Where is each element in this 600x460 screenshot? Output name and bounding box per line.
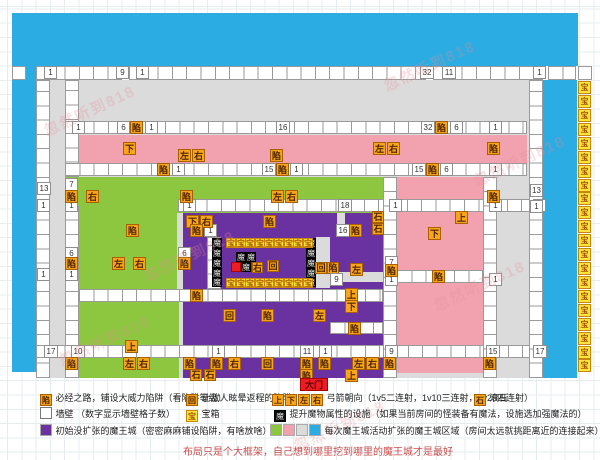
treasure-cell: 宝 [578, 206, 591, 219]
treasure-cell: 宝 [293, 238, 303, 248]
trap-cell: 右 [252, 262, 263, 273]
wall-count-cell: 9 [330, 273, 343, 286]
trap-cell: 回 [267, 260, 279, 272]
trap-cell: 陷 [349, 224, 362, 237]
zone-expansion [12, 13, 578, 66]
legend-item: 宝 宝箱 [186, 407, 220, 422]
boss-core-cell [231, 262, 241, 272]
legend-下-icon: 下 [285, 394, 297, 406]
legend-陷-icon: 陷 [40, 394, 52, 406]
wall-count-cell: 17 [533, 345, 547, 358]
demon-facility-cell: 魔 [212, 238, 222, 248]
trap-cell: 陷 [348, 322, 361, 335]
wall-count-cell: 13 [37, 182, 51, 195]
gate-cell: 大门 [300, 378, 328, 391]
treasure-cell: 宝 [578, 248, 591, 261]
wall-count-cell: 6 [117, 121, 130, 134]
trap-cell: 石 [204, 369, 216, 381]
legend-item-label: 让敌人眩晕返程的陷阱 [199, 393, 292, 403]
trap-cell: 回 [261, 357, 274, 370]
legend-item: 每次魔王城活动扩张的魔王城区域（房间太远就挑距离近的连接起来）… [270, 424, 600, 437]
treasure-cell: 宝 [578, 179, 591, 192]
treasure-cell: 宝 [274, 278, 284, 288]
trap-cell: 陷 [426, 163, 439, 176]
trap-cell: 左 [112, 257, 125, 270]
wall-count-cell: 32 [420, 66, 434, 79]
trap-cell: 下 [428, 227, 441, 240]
trap-cell: 陷 [65, 257, 78, 270]
legend-回-icon: 回 [186, 394, 198, 406]
treasure-cell: 宝 [578, 234, 591, 247]
wall-count-cell: 16 [276, 121, 290, 134]
wall-row [129, 66, 426, 80]
wall-count-cell: 1 [489, 163, 502, 176]
wall-count-cell: 6 [450, 121, 463, 134]
demon-facility-cell: 魔 [306, 248, 316, 258]
legend-item-label: 弓箭朝向（1v5二连射，1v10三连射，1v20四连射） [324, 393, 533, 403]
legend-pink-icon [283, 424, 295, 436]
wall-count-cell: 1 [290, 163, 303, 176]
legend-note: 布局只是个大框架，自己想到哪里挖到哪里的魔王城才是最好 [183, 443, 453, 458]
trap-cell: 石 [190, 369, 202, 381]
legend-右-icon: 右 [311, 394, 323, 406]
treasure-cell: 宝 [578, 318, 591, 331]
trap-cell: 右 [86, 190, 99, 203]
legend-item: 魔 提升魔物属性的设施（如果当前房间的怪装备有魔法，设施选加强魔法的） [274, 407, 587, 422]
trap-cell: 陷 [261, 309, 274, 322]
legend-cyan-icon [309, 424, 321, 436]
treasure-cell: 宝 [303, 278, 313, 288]
treasure-cell: 宝 [578, 95, 591, 108]
trap-cell: 石 [372, 211, 384, 223]
wall-count-cell: 15 [262, 163, 276, 176]
legend-item-label: 墙壁 （数字显示墙壁格子数） [53, 409, 175, 419]
legend-item-label: 每次魔王城活动扩张的魔王城区域（房间太远就挑距离近的连接起来）… [322, 426, 600, 436]
treasure-cell: 宝 [578, 346, 591, 359]
wall-count-cell: 1 [37, 199, 50, 212]
legend-item: 回 让敌人眩晕返程的陷阱 [186, 391, 292, 406]
demon-facility-cell: 魔 [246, 252, 256, 262]
treasure-cell: 宝 [293, 278, 303, 288]
trap-cell: 陷 [432, 270, 445, 283]
trap-cell: 陷 [190, 289, 203, 302]
wall-count-cell: 1 [530, 200, 543, 213]
trap-cell: 陷 [65, 190, 78, 203]
wall-count-cell: 11 [442, 66, 456, 79]
demon-facility-cell: 魔 [212, 258, 222, 268]
wall-count-cell: 1 [389, 199, 402, 212]
treasure-cell: 宝 [578, 220, 591, 233]
trap-cell: 回 [223, 309, 236, 322]
trap-cell: 陷 [65, 357, 78, 370]
trap-cell: 陷 [126, 224, 139, 237]
demon-facility-cell: 魔 [241, 262, 251, 272]
trap-cell: 左 [313, 309, 326, 322]
legend-item: 陷 必经之路，铺设大威力陷阱（看陷阱等级） [40, 391, 227, 406]
trap-cell: 右 [285, 190, 298, 203]
wall-count-cell: 1 [489, 273, 502, 286]
legend-上-icon: 上 [272, 394, 284, 406]
legend-左-icon: 左 [298, 394, 310, 406]
treasure-cell: 宝 [578, 304, 591, 317]
treasure-cell: 宝 [274, 238, 284, 248]
legend-item-label: 必经之路，铺设大威力陷阱（看陷阱等级） [53, 393, 227, 403]
wall-count-cell: 1 [72, 121, 85, 134]
trap-cell: 左 [373, 142, 386, 155]
wall-count-cell: 16 [336, 224, 350, 237]
treasure-cell: 宝 [578, 359, 591, 372]
wall-count-cell: 1 [37, 268, 50, 281]
trap-cell: 陷 [178, 257, 191, 270]
legend-gray-icon [296, 424, 308, 436]
treasure-cell: 宝 [578, 192, 591, 205]
treasure-cell: 宝 [578, 165, 591, 178]
wall-count-cell: 32 [421, 121, 435, 134]
legend-item-label: 宝箱 [199, 409, 220, 419]
trap-cell: 陷 [130, 121, 143, 134]
treasure-cell: 宝 [578, 123, 591, 136]
wall-column [529, 80, 543, 378]
trap-cell: 陷 [180, 190, 193, 203]
trap-cell: 陷 [487, 142, 500, 155]
treasure-cell: 宝 [578, 262, 591, 275]
trap-cell: 右 [133, 257, 146, 270]
wall-count-cell: 9 [116, 66, 129, 79]
treasure-cell: 宝 [578, 290, 591, 303]
wall-count-cell: 1 [136, 66, 149, 79]
wall-cell [578, 66, 592, 80]
treasure-cell: 宝 [245, 278, 255, 288]
trap-cell: 右 [366, 357, 379, 370]
trap-cell: 右 [387, 142, 400, 155]
demon-facility-cell: 魔 [236, 252, 246, 262]
legend-item: 墙壁 （数字显示墙壁格子数） [40, 407, 175, 420]
legend-wall-icon [40, 407, 52, 419]
wall-count-cell: 17 [44, 345, 58, 358]
trap-cell: 陷 [190, 224, 203, 237]
wall-row [79, 289, 383, 302]
legend-green-icon [270, 424, 282, 436]
legend-item-label: 初始没扩张的魔王城（密密麻麻铺设陷阱，有啥放啥） [53, 426, 272, 436]
trap-cell: 陷 [487, 190, 500, 203]
legend-魔-icon: 魔 [274, 410, 286, 422]
legend-item-label: 提升魔物属性的设施（如果当前房间的怪装备有魔法，设施选加强魔法的） [287, 409, 587, 419]
legend-item-label: 滚石 [487, 393, 508, 403]
trap-cell: 陷 [385, 264, 398, 277]
wall-count-cell: 1 [533, 66, 546, 79]
map-canvas: 宝宝宝宝宝宝宝宝宝宝宝宝宝宝宝宝宝宝宝宝宝魔魔魔魔魔魔魔魔魔魔宝宝宝宝宝宝宝宝宝… [0, 0, 600, 460]
trap-cell: 右 [137, 357, 150, 370]
demon-facility-cell: 魔 [212, 248, 222, 258]
legend-石-icon: 石 [474, 394, 486, 406]
trap-cell: 上 [125, 340, 138, 353]
trap-cell: 陷 [157, 163, 170, 176]
trap-cell: 陷 [276, 163, 289, 176]
legend-item: 初始没扩张的魔王城（密密麻麻铺设陷阱，有啥放啥） [40, 424, 272, 437]
legend-宝-icon: 宝 [186, 410, 198, 422]
trap-cell: 陷 [435, 121, 448, 134]
demon-facility-cell: 魔 [212, 277, 222, 287]
legend-purple-icon [40, 424, 52, 436]
treasure-cell: 宝 [578, 151, 591, 164]
trap-cell: 下 [123, 142, 136, 155]
treasure-cell: 宝 [264, 278, 274, 288]
treasure-cell: 宝 [578, 137, 591, 150]
wall-cell [12, 66, 26, 80]
treasure-cell: 宝 [245, 238, 255, 248]
trap-cell: 左 [123, 357, 136, 370]
treasure-cell: 宝 [578, 81, 591, 94]
wall-count-cell: 13 [530, 184, 543, 197]
trap-cell: 陷 [270, 149, 283, 162]
wall-count-cell: 6 [440, 163, 453, 176]
wall-count-cell: 1 [172, 163, 185, 176]
wall-count-cell: 1 [44, 66, 57, 79]
trap-cell: 陷 [383, 357, 396, 370]
wall-count-cell: 1 [145, 121, 158, 134]
treasure-cell: 宝 [226, 278, 236, 288]
trap-cell: 右 [192, 149, 205, 162]
treasure-cell: 宝 [578, 109, 591, 122]
treasure-cell: 宝 [578, 276, 591, 289]
treasure-cell: 宝 [264, 238, 274, 248]
trap-cell: 陷 [483, 357, 496, 370]
zone-expansion [543, 80, 577, 378]
legend-item: 石 滚石 [474, 391, 508, 406]
treasure-cell: 宝 [303, 238, 313, 248]
trap-cell: 回 [315, 262, 327, 274]
wall-count-cell: 15 [412, 163, 426, 176]
treasure-cell: 宝 [578, 332, 591, 345]
wall-row [36, 345, 543, 358]
wall-row [548, 66, 576, 80]
trap-cell: 石 [372, 223, 384, 235]
trap-cell: 右 [228, 357, 241, 370]
wall-count-cell: 1 [489, 121, 502, 134]
trap-cell: 左 [271, 190, 284, 203]
trap-cell: 上 [455, 211, 468, 224]
zone-expansion [12, 66, 38, 372]
trap-cell: 下 [345, 300, 358, 313]
trap-cell: 上 [345, 369, 358, 382]
trap-cell: 陷 [318, 357, 331, 370]
wall-column [36, 80, 50, 378]
treasure-cell: 宝 [226, 238, 236, 248]
trap-cell: 左 [178, 149, 191, 162]
legend-item: 上下左右 弓箭朝向（1v5二连射，1v10三连射，1v20四连射） [272, 391, 533, 406]
trap-cell: 陷 [263, 215, 276, 228]
trap-cell: 左 [350, 263, 363, 276]
wall-count-cell: 18 [338, 199, 352, 212]
